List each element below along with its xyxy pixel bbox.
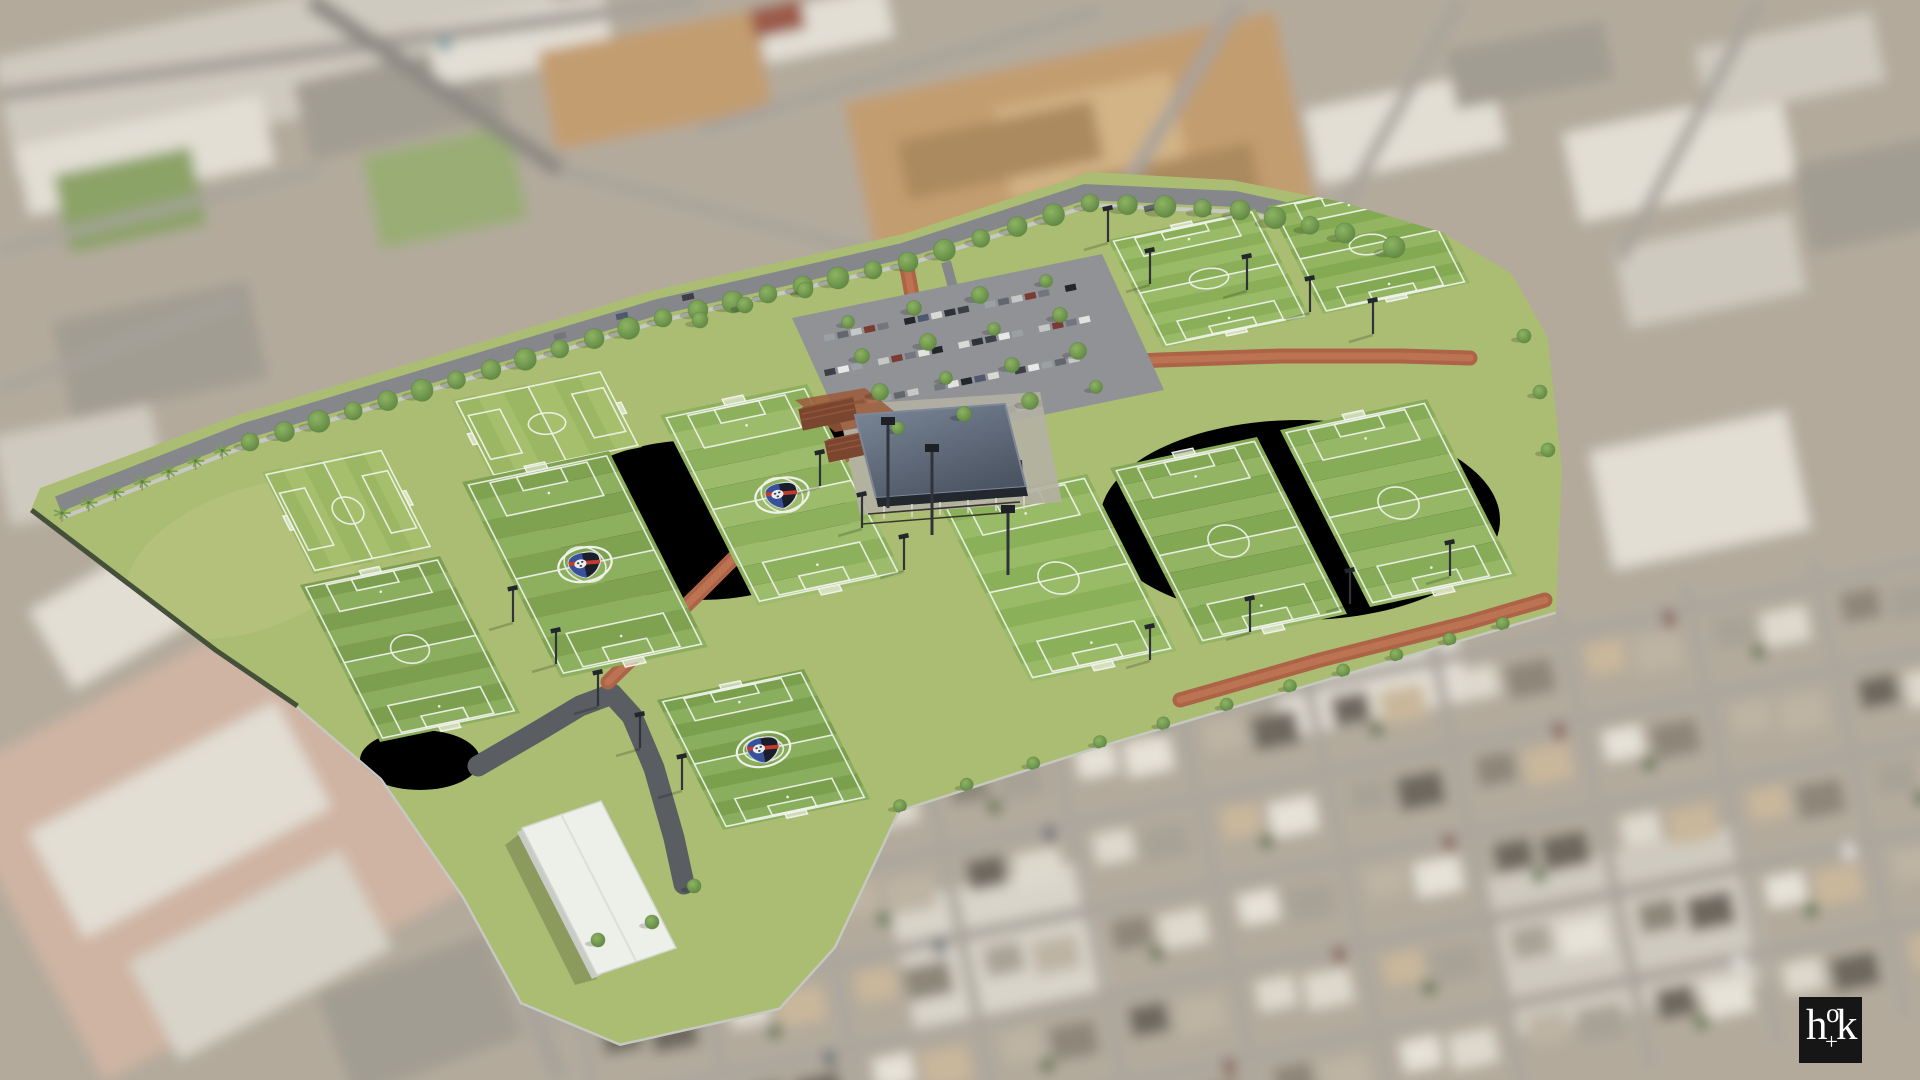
tree bbox=[584, 329, 604, 349]
tree bbox=[591, 933, 605, 947]
tree bbox=[1220, 698, 1233, 711]
tree bbox=[855, 349, 870, 364]
rendering-viewport: h o + k bbox=[0, 0, 1920, 1080]
tree bbox=[1517, 329, 1531, 343]
tree bbox=[1541, 443, 1555, 457]
tree bbox=[1118, 195, 1138, 215]
tree bbox=[1533, 385, 1547, 399]
floodlight-head bbox=[1001, 505, 1015, 513]
tree bbox=[933, 239, 955, 261]
clubhouse-roof bbox=[855, 404, 1026, 498]
tree bbox=[972, 287, 989, 304]
tree bbox=[1040, 275, 1053, 288]
tree bbox=[1284, 680, 1297, 693]
tree bbox=[1496, 617, 1509, 630]
tree bbox=[1335, 223, 1355, 243]
tree bbox=[308, 410, 330, 432]
tree bbox=[687, 879, 701, 893]
tree bbox=[654, 309, 672, 327]
tree bbox=[1043, 204, 1065, 226]
tree bbox=[411, 379, 433, 401]
tree bbox=[1081, 194, 1099, 212]
tree bbox=[378, 391, 398, 411]
palm-crown bbox=[167, 470, 170, 473]
tree bbox=[1157, 717, 1170, 730]
tree bbox=[972, 229, 990, 247]
tree bbox=[1053, 308, 1068, 323]
tree bbox=[1154, 196, 1176, 218]
aerial-rendering bbox=[0, 0, 1920, 1080]
palm-crown bbox=[221, 449, 224, 452]
tree bbox=[344, 402, 362, 420]
tree bbox=[1022, 393, 1039, 410]
hok-logo: h o + k bbox=[1799, 997, 1862, 1063]
tree bbox=[551, 340, 569, 358]
palm-crown bbox=[87, 501, 90, 504]
tree bbox=[957, 407, 972, 422]
tree bbox=[1090, 381, 1103, 394]
tree bbox=[797, 282, 813, 298]
floodlight-head bbox=[881, 417, 895, 425]
tree bbox=[1194, 199, 1212, 217]
tree bbox=[448, 371, 466, 389]
tree bbox=[864, 261, 882, 279]
tree bbox=[618, 317, 640, 339]
tree bbox=[907, 301, 922, 316]
palm-crown bbox=[194, 459, 197, 462]
tree bbox=[645, 915, 659, 929]
tree bbox=[514, 348, 536, 370]
pool bbox=[439, 39, 451, 51]
tree bbox=[1007, 217, 1027, 237]
logo-letter-k: k bbox=[1836, 1004, 1858, 1047]
tree bbox=[842, 316, 855, 329]
tree bbox=[920, 334, 937, 351]
tree bbox=[1070, 343, 1087, 360]
tree bbox=[737, 297, 753, 313]
tree bbox=[1390, 648, 1403, 661]
tree bbox=[898, 252, 918, 272]
floodlight-head bbox=[925, 444, 939, 452]
tree bbox=[692, 312, 708, 328]
tree bbox=[241, 433, 259, 451]
tree bbox=[1301, 216, 1319, 234]
tree bbox=[759, 285, 777, 303]
tree bbox=[1443, 633, 1456, 646]
tree bbox=[1337, 664, 1350, 677]
tree bbox=[988, 323, 1001, 336]
palm-crown bbox=[141, 480, 144, 483]
tree bbox=[872, 384, 889, 401]
tree bbox=[1264, 207, 1286, 229]
tree bbox=[940, 372, 953, 385]
tree bbox=[481, 360, 501, 380]
tree bbox=[1005, 358, 1020, 373]
tree bbox=[1094, 736, 1107, 749]
palm-crown bbox=[114, 491, 117, 494]
palm-crown bbox=[60, 511, 63, 514]
tree bbox=[274, 422, 294, 442]
tree bbox=[1383, 236, 1405, 258]
tree bbox=[1230, 200, 1250, 220]
tree bbox=[827, 267, 849, 289]
